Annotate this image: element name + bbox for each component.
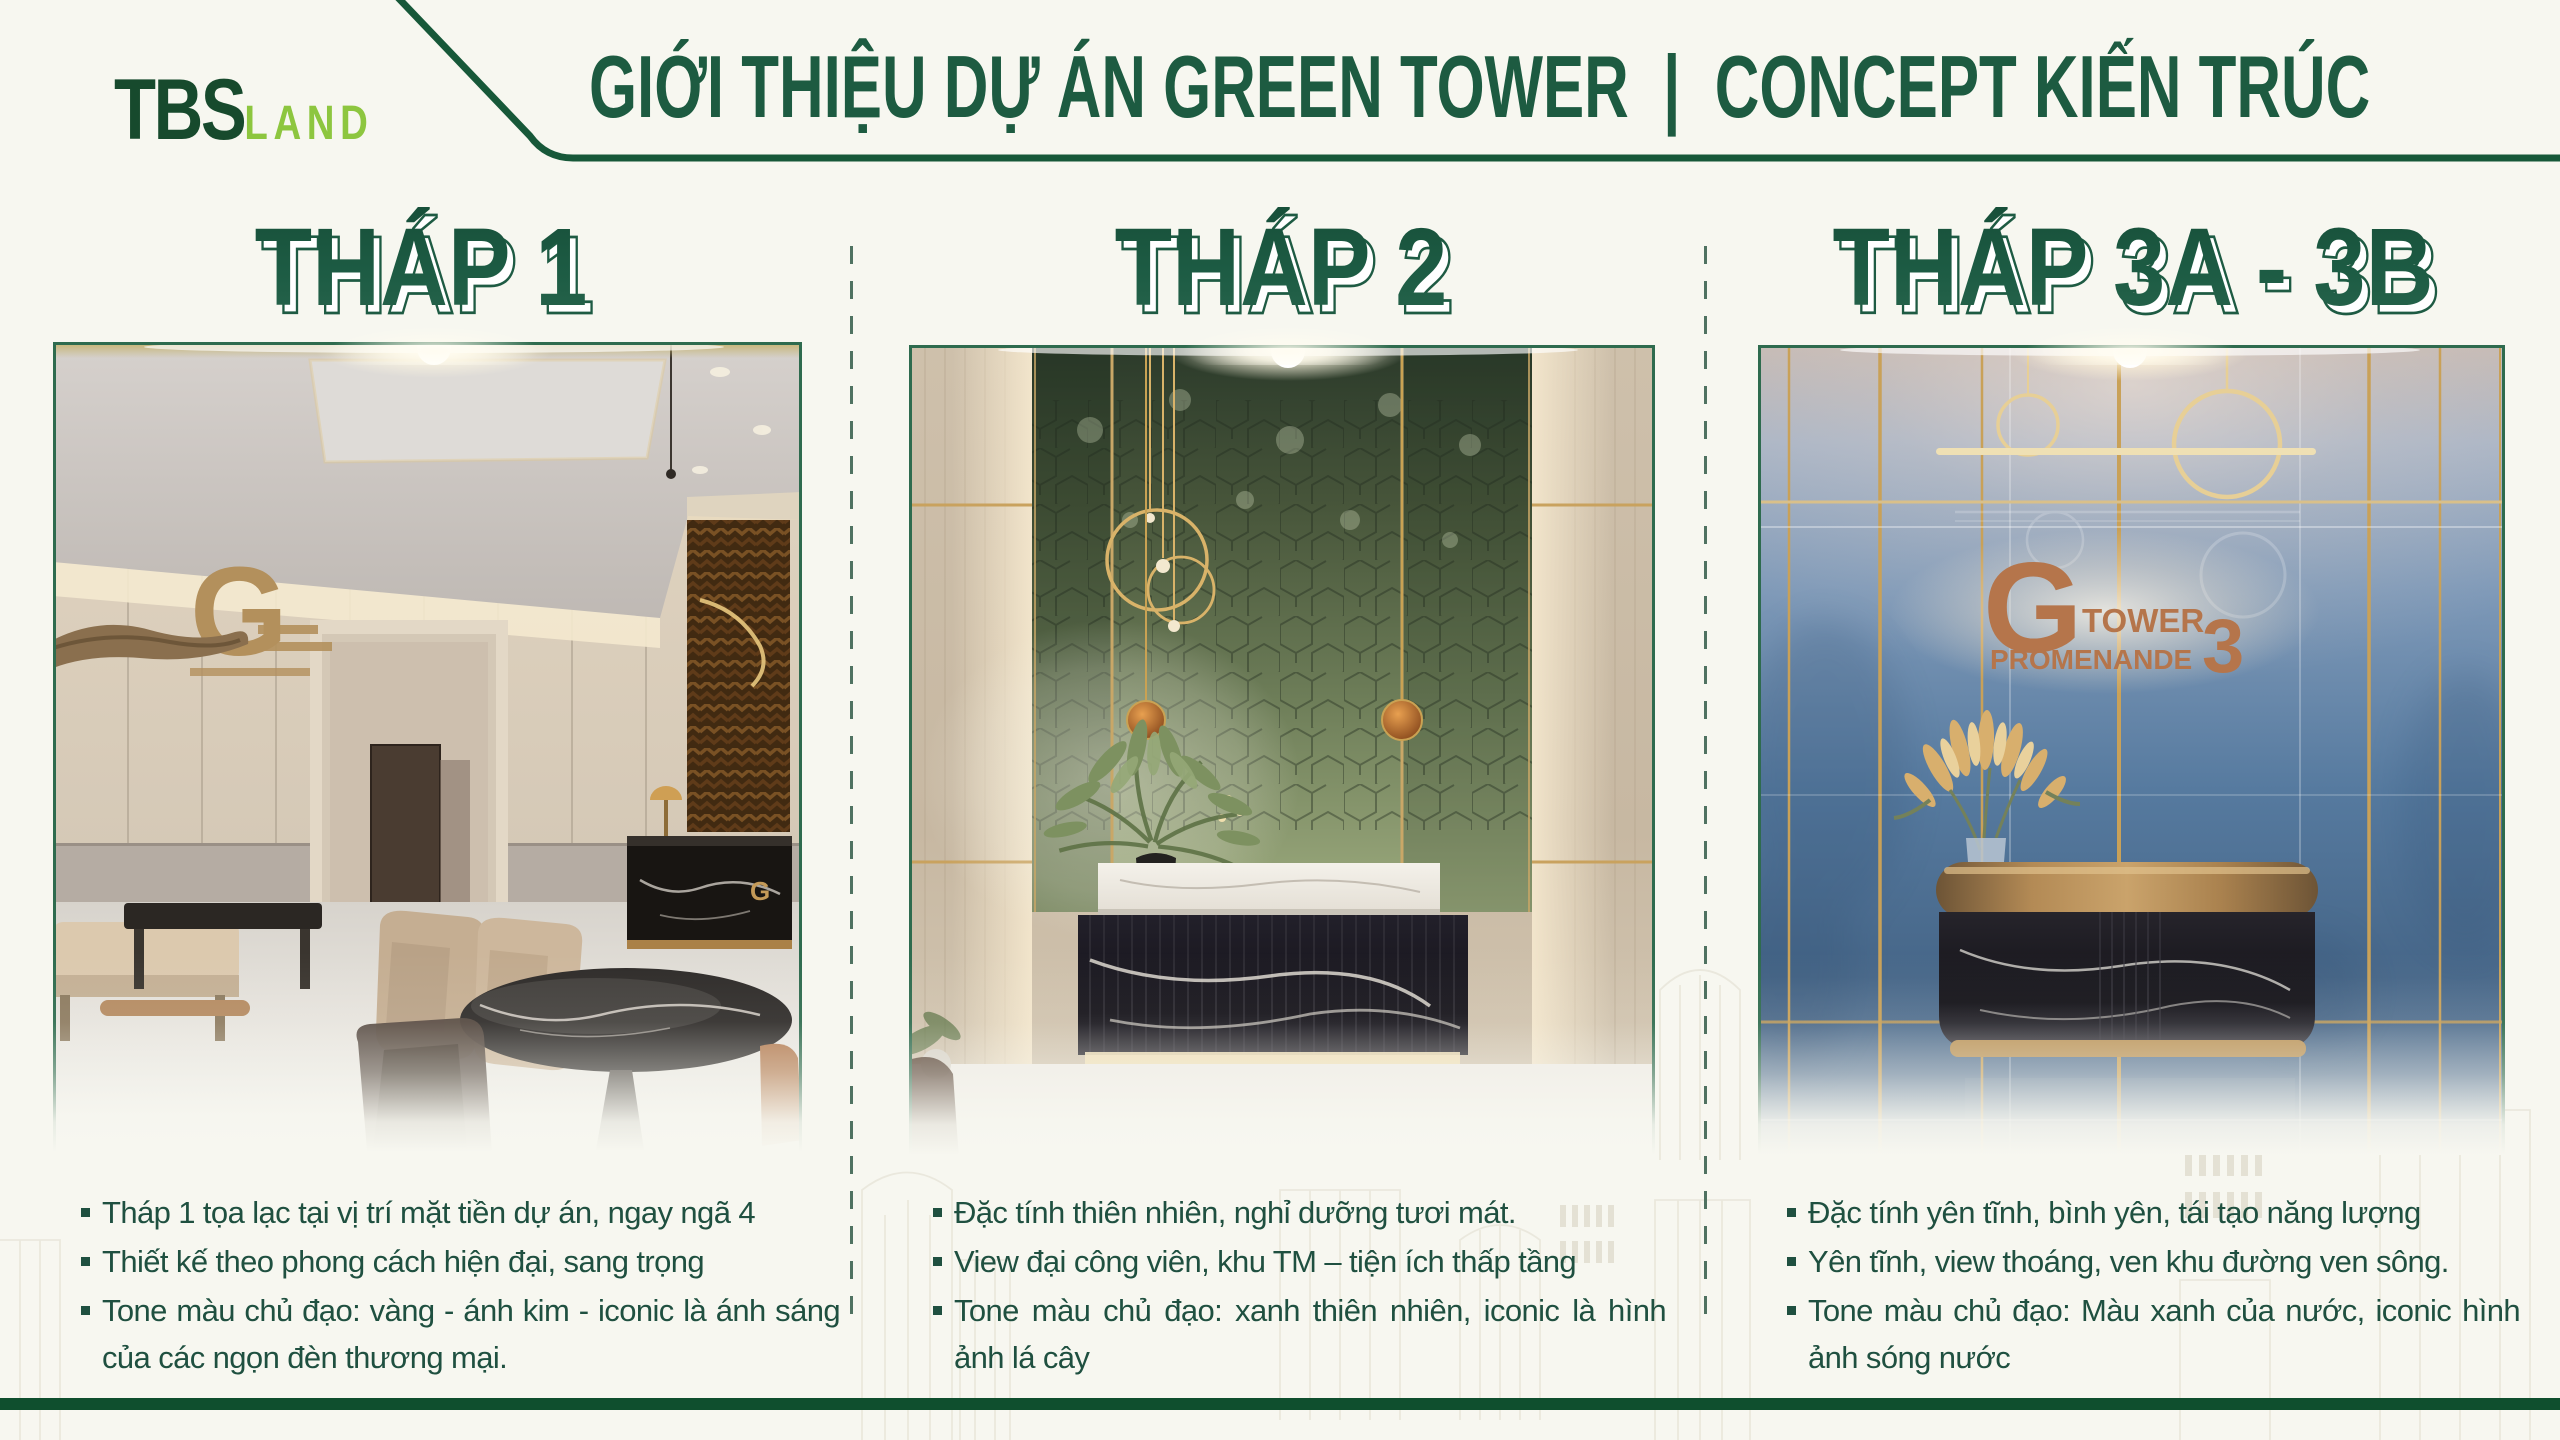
svg-text:3: 3	[2202, 604, 2244, 689]
svg-text:G: G	[750, 876, 770, 906]
svg-text:TOWER: TOWER	[2082, 602, 2204, 639]
svg-text:PROMENANDE: PROMENANDE	[1990, 644, 2192, 675]
svg-text:G: G	[190, 541, 288, 682]
